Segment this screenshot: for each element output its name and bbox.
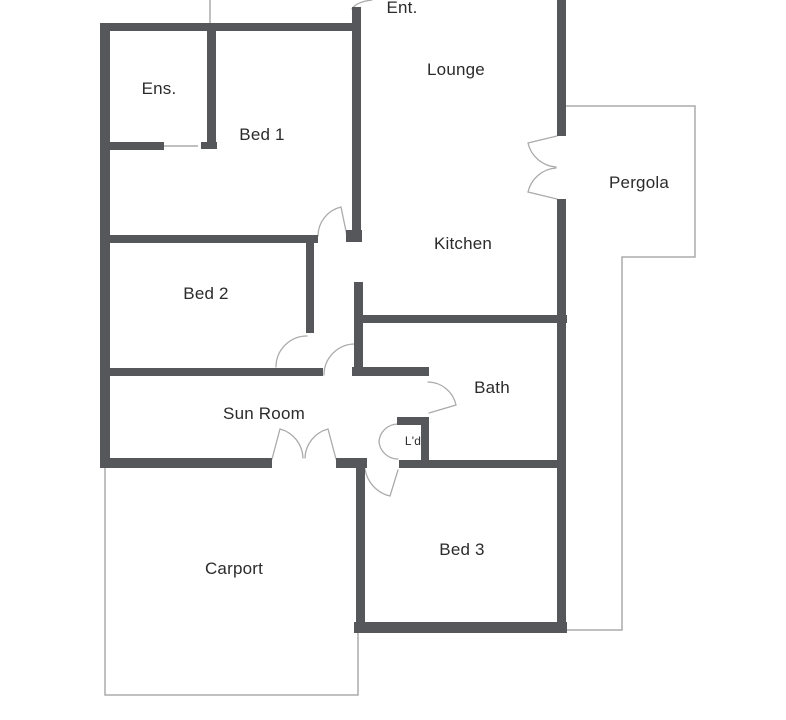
wall-right-lower xyxy=(557,199,566,633)
wall-bath-bottom xyxy=(399,460,558,468)
wall-bed3-left xyxy=(356,458,365,633)
room-label-lounge: Lounge xyxy=(427,60,485,80)
room-label-kitchen: Kitchen xyxy=(434,234,492,254)
bed3-door-arc xyxy=(365,469,398,496)
wall-ens-right xyxy=(207,28,216,148)
wall-bed3-bottom xyxy=(354,622,567,633)
wall-lounge-hall-foot xyxy=(346,230,362,242)
wall-hall-kitchen xyxy=(354,282,363,375)
wall-left xyxy=(100,23,110,468)
sunroom-door-arc-left xyxy=(272,429,303,459)
pergola-door-arc-bottom xyxy=(528,168,557,199)
wall-laundry-right xyxy=(421,417,429,463)
room-label-bed2: Bed 2 xyxy=(183,284,228,304)
bed1-door-arc xyxy=(318,207,347,236)
hall-sunroom-door-arc xyxy=(324,344,355,375)
wall-ens-right-foot xyxy=(201,142,217,149)
room-label-laundry: L'd xyxy=(405,434,421,448)
thin-outlines xyxy=(105,0,695,695)
floor-plan-drawing xyxy=(0,0,786,720)
pergola-door-arc-top xyxy=(528,136,557,167)
wall-laundry-top xyxy=(397,417,424,425)
laundry-door-arc-bottom xyxy=(379,441,398,459)
room-label-bed1: Bed 1 xyxy=(239,125,284,145)
laundry-door-arc-top xyxy=(379,424,398,442)
carport-outline xyxy=(105,468,358,695)
sunroom-door-arc-right xyxy=(305,429,336,459)
wall-bed2-right xyxy=(306,240,314,333)
wall-kitchen-bath-divider xyxy=(354,315,567,323)
bed2-door-arc xyxy=(276,336,307,367)
wall-bed2-sunroom-divider xyxy=(100,368,323,376)
room-label-pergola: Pergola xyxy=(609,173,669,193)
wall-sunroom-bottom-left xyxy=(100,458,272,468)
room-label-bed3: Bed 3 xyxy=(439,540,484,560)
bath-door-arc xyxy=(428,382,456,413)
wall-right-upper xyxy=(557,0,566,136)
wall-ens-bottom xyxy=(100,142,164,150)
room-label-ent: Ent. xyxy=(386,0,417,18)
floor-plan: Ent. Lounge Ens. Bed 1 Pergola Kitchen B… xyxy=(0,0,786,720)
wall-top xyxy=(100,23,360,31)
room-label-bath: Bath xyxy=(474,378,510,398)
room-label-carport: Carport xyxy=(205,559,263,579)
wall-bath-north xyxy=(352,367,429,376)
wall-lounge-hall xyxy=(352,7,361,232)
wall-bed1-bed2-divider xyxy=(100,235,318,243)
room-label-sun-room: Sun Room xyxy=(223,404,305,424)
room-label-ens: Ens. xyxy=(142,79,177,99)
